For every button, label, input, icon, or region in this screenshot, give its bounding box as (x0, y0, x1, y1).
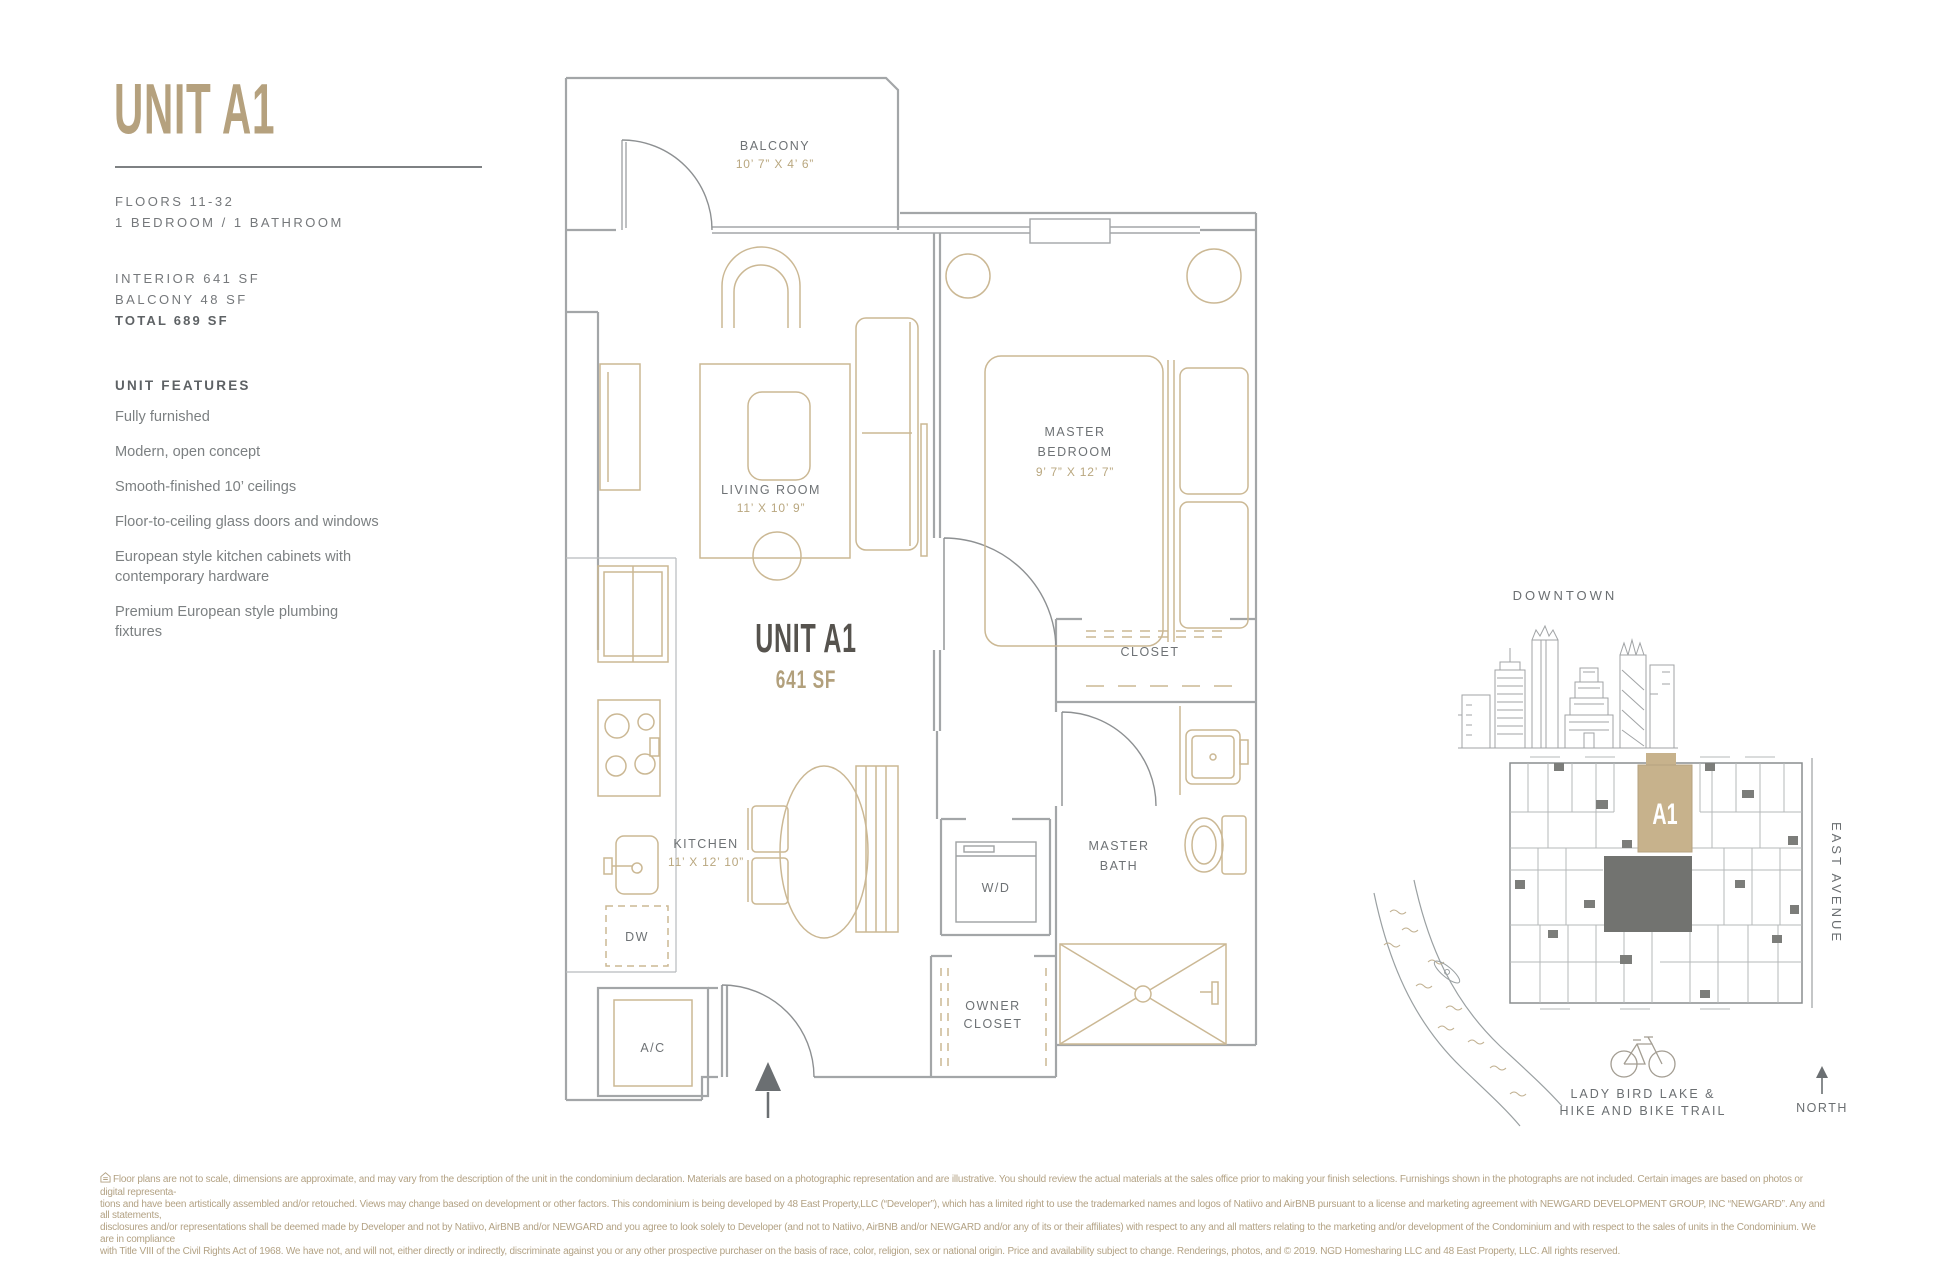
skyline-icon (1458, 626, 1678, 748)
page-title: UNIT A1 (114, 74, 329, 128)
lake-label-line1: LADY BIRD LAKE & (1570, 1087, 1715, 1101)
water-waves (1384, 910, 1526, 1096)
round-table (946, 254, 990, 298)
round-table (1187, 249, 1241, 303)
bath-sink (1186, 730, 1240, 784)
total-sf-label: TOTAL 689 SF (115, 310, 260, 331)
disclaimer-line: with Title VIII of the Civil Rights Act … (100, 1246, 1825, 1258)
console (600, 364, 640, 490)
toilet (1222, 816, 1246, 874)
site-plan-core (1604, 856, 1692, 932)
north-label: NORTH (1796, 1101, 1848, 1115)
features-list: Fully furnished Modern, open concept Smo… (115, 407, 415, 642)
unit-title-text: UNIT A1 (114, 74, 275, 145)
unit-features: UNIT FEATURES Fully furnished Modern, op… (115, 378, 415, 657)
wd-label: W/D (982, 881, 1011, 895)
door-swings (622, 140, 1156, 1077)
furniture (598, 247, 1248, 1086)
equal-housing-icon (100, 1172, 111, 1187)
bath-label: MASTER (1088, 839, 1149, 853)
tv (921, 424, 927, 556)
chair (752, 806, 788, 852)
disclaimer-line: tions and have been artistically assembl… (100, 1199, 1825, 1223)
kitchen-sink (616, 836, 658, 894)
east-avenue-label: EAST AVENUE (1829, 822, 1844, 944)
site-plan-unit-tag: A1 (1652, 798, 1677, 831)
plan-unit-area: 641 SF (776, 665, 836, 694)
bike-icon (1611, 1037, 1675, 1077)
pillow (1180, 368, 1248, 494)
interior-sf-label: INTERIOR 641 SF (115, 268, 260, 289)
title-underline (115, 166, 482, 168)
bath-label: BATH (1100, 859, 1138, 873)
feature-item: Premium European style plumbing fixtures (115, 602, 385, 642)
balcony-label: BALCONY (740, 139, 810, 153)
north-arrow-icon (1816, 1066, 1828, 1094)
feature-item: European style kitchen cabinets with con… (115, 547, 385, 587)
balcony-dims: 10’ 7” X 4’ 6” (736, 157, 814, 171)
dining-table (780, 766, 868, 938)
bed (985, 356, 1163, 646)
rug (700, 364, 850, 558)
island (856, 766, 898, 932)
disclaimer-line: Floor plans are not to scale, dimensions… (100, 1174, 1803, 1198)
unit-a1-balcony-highlight (1646, 753, 1676, 765)
ac-label: A/C (640, 1041, 665, 1055)
feature-item: Smooth-finished 10’ ceilings (115, 477, 385, 497)
bedroom-dims: 9’ 7” X 12’ 7” (1036, 465, 1114, 479)
floorplan-drawing: BALCONY LIVING ROOM MASTER BEDROOM CLOSE… (540, 68, 1270, 1130)
disclaimer: Floor plans are not to scale, dimensions… (100, 1172, 1825, 1258)
feature-item: Floor-to-ceiling glass doors and windows (115, 512, 385, 532)
downtown-label: DOWNTOWN (1513, 588, 1618, 603)
kitchen-dims: 11’ X 12’ 10” (668, 855, 744, 869)
window-strip (622, 140, 1200, 243)
site-plan: A1 (1510, 753, 1802, 1009)
living-room-dims: 11’ X 10’ 9” (737, 501, 806, 515)
balcony-sf-label: BALCONY 48 SF (115, 289, 260, 310)
unit-summary: FLOORS 11-32 1 BEDROOM / 1 BATHROOM (115, 191, 344, 233)
bedroom-label: MASTER (1044, 425, 1105, 439)
coffee-table (748, 392, 810, 480)
floorplan-walls (566, 78, 1256, 1100)
disclaimer-line: disclosures and/or representations shall… (100, 1222, 1825, 1246)
kitchen-label: KITCHEN (673, 837, 738, 851)
dw-label: DW (625, 930, 649, 944)
floors-label: FLOORS 11-32 (115, 191, 344, 212)
owner-closet-label: CLOSET (963, 1017, 1022, 1031)
feature-item: Fully furnished (115, 407, 385, 427)
plan-unit-label: UNIT A1 (755, 616, 857, 662)
bedroom-label: BEDROOM (1037, 445, 1112, 459)
side-table (753, 532, 801, 580)
pillow (1180, 502, 1248, 628)
entry-arrow-icon (755, 1062, 781, 1118)
area-summary: INTERIOR 641 SF BALCONY 48 SF TOTAL 689 … (115, 268, 260, 331)
feature-item: Modern, open concept (115, 442, 385, 462)
bed-bath-label: 1 BEDROOM / 1 BATHROOM (115, 212, 344, 233)
sofa (856, 318, 918, 550)
armchair (722, 247, 800, 328)
owner-closet-label: OWNER (965, 999, 1020, 1013)
closet-label: CLOSET (1120, 645, 1179, 659)
lake-label-line2: HIKE AND BIKE TRAIL (1560, 1104, 1727, 1118)
location-key: DOWNTOWN (1355, 575, 1890, 1140)
living-room-label: LIVING ROOM (721, 483, 821, 497)
features-heading: UNIT FEATURES (115, 378, 415, 393)
